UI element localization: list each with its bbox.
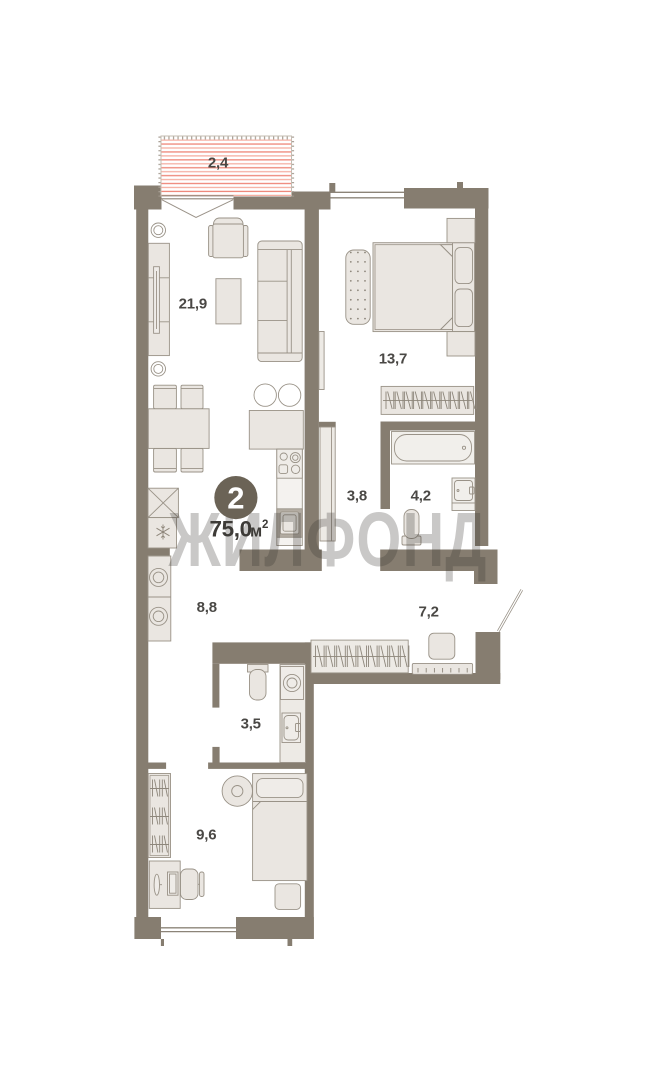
svg-text:9,6: 9,6: [196, 827, 216, 844]
svg-text:21,9: 21,9: [179, 296, 207, 313]
svg-text:2,4: 2,4: [208, 155, 229, 172]
svg-text:м: м: [250, 523, 262, 541]
svg-text:2: 2: [227, 481, 244, 516]
svg-text:75,0: 75,0: [210, 517, 252, 542]
svg-text:13,7: 13,7: [379, 351, 407, 368]
svg-text:4,2: 4,2: [411, 488, 431, 505]
svg-text:7,2: 7,2: [418, 604, 438, 621]
svg-text:8,8: 8,8: [197, 599, 217, 616]
svg-text:3,8: 3,8: [347, 488, 367, 505]
svg-text:3,5: 3,5: [241, 716, 261, 733]
svg-text:2: 2: [262, 519, 268, 531]
